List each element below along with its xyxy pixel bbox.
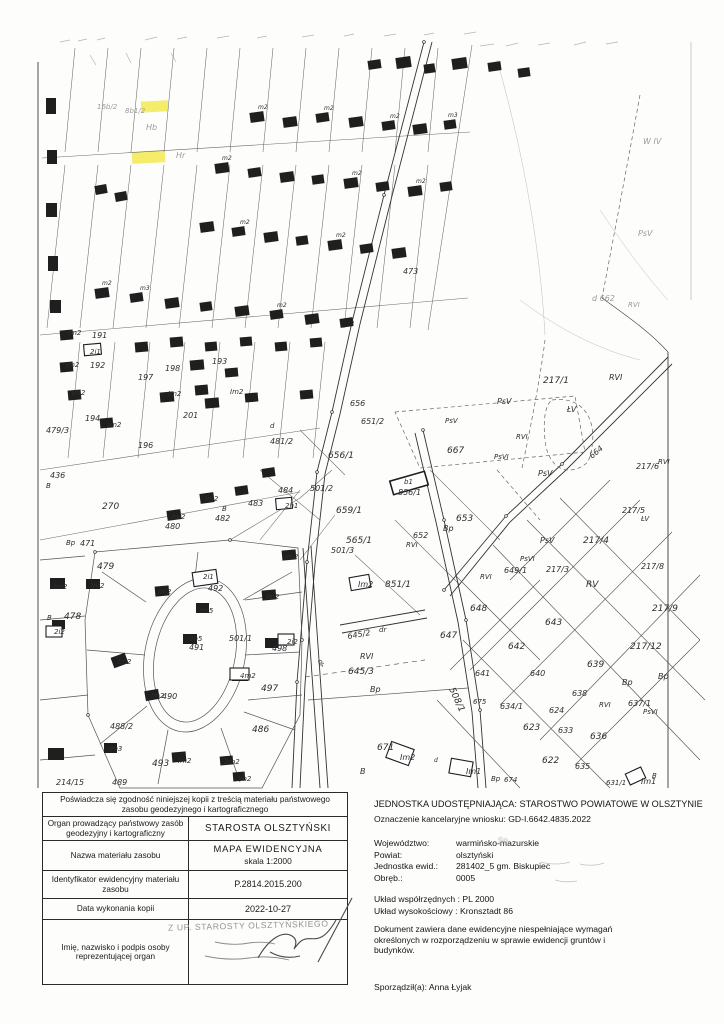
map-label: 479: [97, 562, 114, 572]
map-drawing: 16b/28b1/2HbHrW IVPsVd 662RVIm2m2m2m3m2m…: [0, 0, 724, 792]
map-label: Bp: [66, 539, 76, 547]
map-label: Im2: [358, 580, 373, 589]
map-label: d 662: [592, 294, 615, 303]
map-label: PsVI: [520, 555, 535, 563]
building: [327, 239, 342, 251]
building: [46, 98, 56, 114]
crs-horizontal: Układ współrzędnych : PL 2000: [374, 894, 720, 906]
building: [94, 184, 107, 195]
map-label: d: [270, 422, 275, 430]
map-label: 856/1: [398, 488, 421, 497]
building: [245, 392, 259, 402]
map-label: 645/2: [347, 628, 371, 641]
map-label: dr: [316, 659, 325, 669]
building: [412, 123, 427, 135]
map-label: 488/2: [110, 722, 133, 731]
map-label: 2i1: [90, 348, 101, 356]
map-label: Im5: [200, 607, 214, 615]
map-label: Bp: [443, 524, 454, 533]
building: [367, 59, 381, 70]
map-label: 8b1/2: [125, 107, 146, 115]
parcel-lines: [40, 45, 500, 615]
admin-fields: Województwo:warmińsko-mazurskie Powiat:o…: [374, 838, 720, 884]
map-label: RVI: [406, 541, 418, 549]
map-label: 197: [138, 373, 154, 382]
map-label: 192: [90, 361, 105, 370]
map-label: RVI: [609, 373, 623, 382]
map-label: Bp: [491, 775, 501, 783]
map-label: Im2: [72, 389, 86, 397]
map-label: 565/1: [346, 536, 372, 546]
building: [391, 247, 406, 259]
map-label: 2i1: [203, 573, 214, 581]
map-label: 636: [590, 732, 607, 742]
building: [190, 359, 205, 370]
building: [249, 111, 264, 123]
building: [295, 235, 308, 246]
map-label: Im2: [54, 583, 68, 591]
map-label: 501/3: [331, 546, 354, 555]
map-label: m2: [102, 280, 112, 287]
building: [199, 221, 214, 233]
building: [443, 119, 456, 130]
map-label: 624: [549, 706, 564, 715]
building: [517, 67, 530, 78]
map-label: 217/3: [546, 565, 569, 574]
building: [199, 301, 212, 312]
map-label: 656: [350, 399, 365, 408]
building: [310, 337, 323, 347]
map-label: 493: [152, 759, 169, 769]
cert-row-label: Nazwa materiału zasobu: [43, 841, 189, 870]
scanned-cadastral-document: 16b/28b1/2HbHrW IVPsVd 662RVIm2m2m2m3m2m…: [0, 0, 724, 1024]
culdesac: [40, 540, 302, 788]
building: [261, 467, 275, 478]
building: [94, 287, 109, 299]
map-label: m3: [448, 112, 458, 119]
map-label: Im2: [172, 513, 186, 521]
map-label: m2: [352, 170, 362, 177]
building: [279, 171, 294, 183]
map-label: m2: [222, 155, 232, 162]
map-label: RVI: [599, 701, 611, 709]
map-label: Im2: [266, 593, 280, 601]
material-scale: skala 1:2000: [244, 857, 292, 867]
map-label: 482: [215, 514, 230, 523]
map-label: W IV: [643, 137, 662, 146]
cert-row-value: 2022-10-27: [189, 899, 347, 919]
junction-dots: [87, 41, 564, 717]
map-label: 479/3: [46, 426, 69, 435]
map-label: 2i2: [287, 638, 298, 646]
map-label: Bp: [658, 672, 669, 681]
building: [339, 317, 353, 328]
data-quality-note: Dokument zawiera dane ewidencyjne niespe…: [374, 924, 636, 956]
map-label: 471: [80, 539, 95, 548]
map-label: 645/3: [348, 667, 374, 677]
map-label: 16b/2: [97, 103, 118, 111]
building: [48, 256, 58, 271]
building: [50, 300, 61, 313]
map-label: 651/2: [361, 417, 384, 426]
field-label: Powiat:: [374, 850, 456, 862]
map-label: 490: [162, 692, 177, 701]
map-label: 675: [473, 698, 487, 706]
map-label: Bp: [370, 685, 381, 694]
map-label: Im2: [205, 495, 219, 503]
map-label: PsVI: [494, 453, 509, 461]
map-label: 217/1: [543, 376, 569, 386]
map-label: Im2: [230, 388, 244, 396]
map-label: B: [222, 505, 227, 513]
cert-header: Poświadcza się zgodność niniejszej kopii…: [43, 793, 347, 816]
map-label: PsVI: [643, 708, 658, 716]
map-label: 217/8: [641, 562, 664, 571]
map-label: 851/1: [385, 580, 411, 590]
map-label: m3: [140, 285, 150, 292]
map-label: 659/1: [336, 506, 362, 516]
building: [114, 191, 127, 202]
building: [46, 203, 57, 217]
field-label: Jednostka ewid.:: [374, 861, 456, 873]
map-label: 647: [440, 631, 457, 641]
building: [407, 185, 422, 197]
map-label: 638: [572, 689, 587, 698]
field-value: 0005: [456, 873, 720, 885]
map-label: 492: [208, 584, 223, 593]
map-label: 501/1: [229, 634, 252, 643]
building: [164, 297, 179, 309]
map-label: 498: [272, 644, 287, 653]
building: [240, 336, 253, 346]
building: [304, 313, 319, 325]
map-label: Im2: [238, 775, 252, 783]
cert-row-value: STAROSTA OLSZTYŃSKI: [189, 817, 347, 840]
map-label: B: [360, 767, 366, 776]
map-label: 643: [545, 618, 562, 628]
map-label: 217/4: [583, 536, 609, 546]
stamp-fragment: Sp.: [498, 836, 511, 846]
map-label: 484: [278, 486, 293, 495]
map-label: Im2: [68, 329, 82, 337]
cert-row-value: MAPA EWIDENCYJNA skala 1:2000: [189, 841, 347, 870]
map-label: 631/1: [606, 779, 626, 787]
building: [214, 162, 229, 174]
map-label: Im5: [189, 635, 203, 643]
map-label: 194: [85, 414, 100, 423]
author-line: Sporządził(a): Anna Łyjak: [374, 982, 720, 992]
map-label: Im1: [641, 777, 656, 786]
map-label: 622: [542, 756, 559, 766]
building: [423, 63, 435, 73]
map-label: 642: [508, 642, 525, 652]
map-label: 436: [50, 471, 65, 480]
case-number-line: Oznaczenie kancelaryjne wniosku: GD-I.66…: [374, 814, 720, 824]
building: [451, 57, 467, 70]
map-label: 2h1: [285, 502, 298, 510]
map-label: b1: [404, 478, 413, 486]
map-label: Im2: [178, 757, 192, 765]
cert-row-label: Organ prowadzący państwowy zasób geodezy…: [43, 817, 189, 840]
map-label: RVI: [480, 573, 492, 581]
map-label: Im2: [118, 658, 132, 666]
map-label: 193: [212, 357, 227, 366]
map-label: 270: [102, 502, 119, 512]
map-label: 2i2: [54, 628, 65, 636]
map-label: m2: [240, 219, 250, 226]
map-label: 489: [112, 778, 127, 787]
labels-layer: 16b/28b1/2HbHrW IVPsVd 662RVIm2m2m2m3m2m…: [46, 103, 678, 787]
field-value: olsztyński: [456, 850, 720, 862]
map-label: d: [434, 757, 438, 764]
building: [315, 112, 329, 123]
map-label: 217/6: [636, 462, 659, 471]
building: [170, 336, 184, 347]
cert-row-label: Identyfikator ewidencyjny materiału zaso…: [43, 871, 189, 898]
field-label: Obręb.:: [374, 873, 456, 885]
building: [205, 341, 218, 351]
field-value: warmińsko-mazurskie: [456, 838, 720, 850]
map-label: 656/1: [328, 451, 354, 461]
map-label: m2: [416, 178, 426, 185]
map-label: m2: [390, 113, 400, 120]
map-label: PsV: [540, 536, 555, 545]
issuing-unit-block: JEDNOSTKA UDOSTĘPNIAJĄCA: STAROSTWO POWI…: [374, 794, 720, 992]
map-label: 481/2: [270, 437, 293, 446]
certification-table: Poświadcza się zgodność niniejszej kopii…: [42, 792, 348, 985]
map-label: m2: [324, 105, 334, 112]
map-label: 480: [165, 522, 180, 531]
map-label: ŁV: [640, 515, 650, 523]
field-value: 281402_5 gm. Biskupiec: [456, 861, 720, 873]
map-label: 191: [92, 331, 107, 340]
map-label: 671: [377, 743, 394, 753]
map-label: dr: [379, 626, 387, 634]
material-name: MAPA EWIDENCYJNA: [214, 844, 323, 855]
building: [343, 177, 358, 189]
map-label: 214/15: [56, 778, 84, 787]
map-label: Hr: [176, 151, 186, 160]
map-label: Bp: [622, 678, 633, 687]
map-label: Im2: [400, 753, 415, 762]
map-label: 637/1: [628, 699, 651, 708]
building: [195, 384, 209, 395]
building: [247, 167, 261, 178]
building: [348, 116, 363, 128]
cert-row-label: Data wykonania kopii: [43, 899, 189, 919]
map-label: PsV: [538, 469, 553, 478]
map-label: 217/9: [652, 604, 678, 614]
map-label: RVI: [516, 433, 528, 441]
building: [234, 305, 249, 317]
map-label: PsV: [445, 417, 459, 425]
map-label: 217/5: [622, 506, 645, 515]
map-label: 639: [587, 660, 604, 670]
map-label: B: [46, 482, 51, 490]
cadastral-map: 16b/28b1/2HbHrW IVPsVd 662RVIm2m2m2m3m2m…: [0, 0, 724, 792]
building: [487, 61, 501, 72]
map-label: ŁV: [566, 405, 577, 414]
map-label: Im2: [66, 361, 80, 369]
map-label: B: [47, 614, 52, 622]
building: [263, 231, 278, 243]
building: [135, 341, 149, 352]
building: [231, 226, 245, 237]
map-label: 198: [165, 364, 180, 373]
building: [311, 174, 324, 185]
map-label: PsV: [638, 229, 653, 238]
building: [269, 309, 283, 320]
map-label: RVI: [658, 458, 670, 466]
map-label: 633: [558, 726, 573, 735]
building: [234, 485, 248, 496]
building: [47, 150, 57, 164]
ne-faint-lines: [497, 60, 668, 360]
map-label: PsV: [497, 397, 512, 406]
building: [129, 292, 143, 303]
cert-row-value: P.2814.2015.200: [189, 871, 347, 898]
map-label: Hb: [146, 123, 157, 132]
map-label: RV: [586, 580, 599, 590]
map-label: 623: [523, 723, 540, 733]
map-label: 491: [189, 643, 204, 652]
map-label: 501/2: [310, 484, 333, 493]
map-label: 4m2: [240, 672, 256, 680]
map-label: 486: [252, 725, 269, 735]
building: [375, 181, 389, 192]
building: [205, 397, 220, 408]
building: [275, 341, 288, 351]
map-label: 674: [504, 776, 517, 784]
map-label: Im2: [91, 582, 105, 590]
building: [225, 367, 239, 377]
map-label: 640: [530, 669, 545, 678]
building: [300, 389, 314, 399]
map-label: m2: [258, 104, 268, 111]
field-label: Województwo:: [374, 838, 456, 850]
map-label: 652: [413, 531, 428, 540]
map-label: Im2: [158, 588, 172, 596]
map-label: 478: [64, 612, 81, 622]
building: [395, 56, 411, 69]
map-label: 201: [183, 411, 198, 420]
map-label: RVI: [628, 301, 640, 309]
buildings-layer: [46, 56, 646, 785]
map-label: 217/12: [630, 642, 662, 652]
map-label: m2: [277, 302, 287, 309]
issuing-unit-line: JEDNOSTKA UDOSTĘPNIAJĄCA: STAROSTWO POWI…: [374, 799, 720, 809]
building: [48, 748, 64, 760]
map-label: 508/1: [446, 686, 466, 714]
building: [282, 116, 297, 128]
map-label: 473: [403, 267, 418, 276]
map-label: Im2: [168, 390, 182, 398]
map-label: 634/1: [500, 702, 523, 711]
map-label: 653: [456, 514, 473, 524]
map-label: Im2: [285, 553, 299, 561]
map-label: 497: [261, 684, 278, 694]
map-label: 483: [248, 499, 263, 508]
map-label: Im3: [109, 745, 122, 753]
map-label: 635: [575, 762, 590, 771]
crs-vertical: Układ wysokościowy : Kronsztadt 86: [374, 906, 720, 918]
map-label: 667: [447, 446, 464, 456]
building: [381, 120, 395, 131]
building: [439, 181, 452, 192]
map-label: 649/1: [504, 566, 527, 575]
map-label: 196: [138, 441, 153, 450]
map-label: Im2: [108, 421, 122, 429]
map-label: 641: [475, 669, 490, 678]
map-label: RVI: [360, 652, 374, 661]
map-label: Im1: [466, 767, 481, 776]
building: [359, 243, 373, 254]
map-label: 648: [470, 604, 487, 614]
map-label: 2m2: [224, 758, 240, 766]
map-label: m2: [336, 232, 346, 239]
